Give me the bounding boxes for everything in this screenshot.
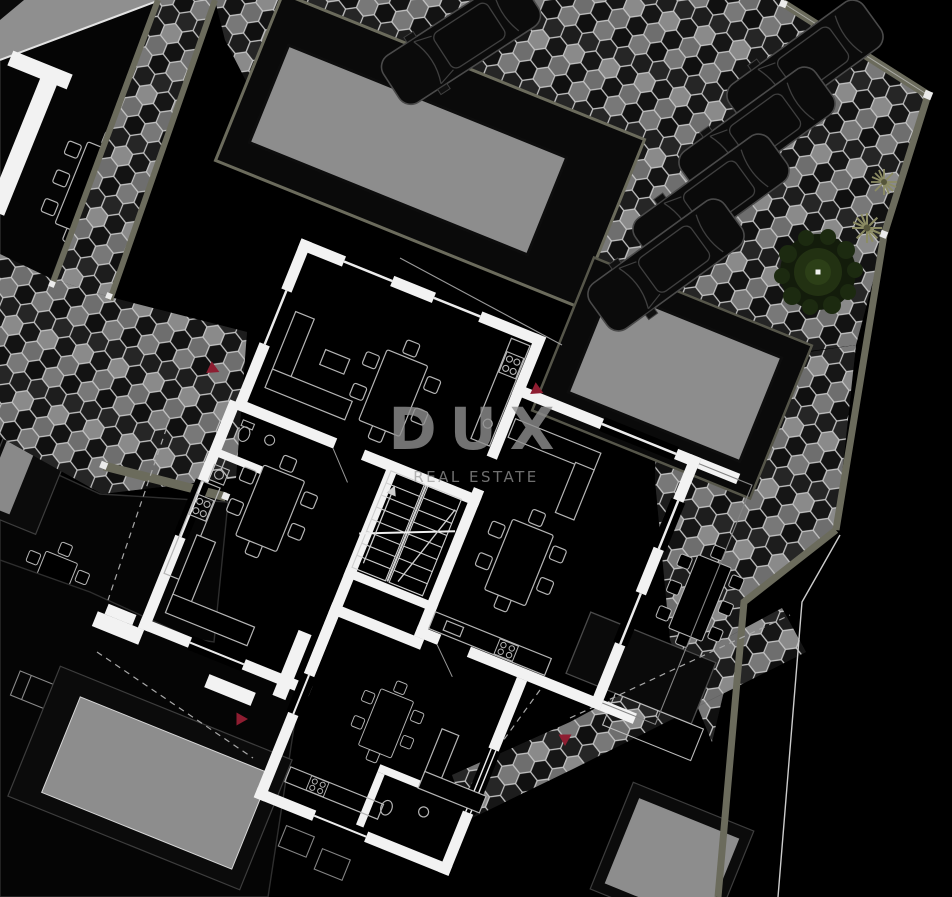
site-plan: DUX REAL ESTATE <box>0 0 952 897</box>
watermark-subtitle: REAL ESTATE <box>413 468 539 486</box>
watermark-title: DUX <box>389 395 568 463</box>
site-plan-svg: DUX REAL ESTATE <box>0 0 952 897</box>
